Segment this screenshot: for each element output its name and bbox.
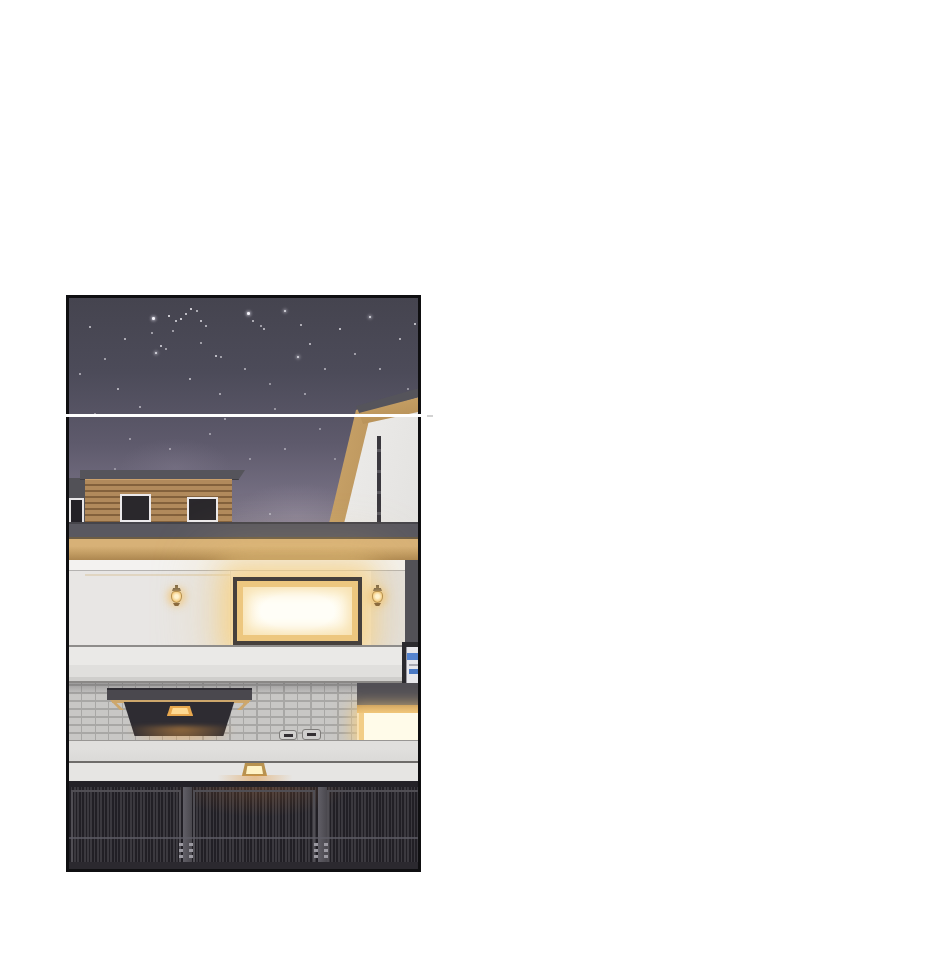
floor-slab-band — [69, 645, 418, 683]
gate-hinge — [314, 849, 318, 852]
object-slot — [284, 734, 293, 737]
intercom-panel — [409, 669, 418, 674]
gate-hinge — [189, 849, 193, 852]
star — [200, 320, 202, 322]
gate-hinge — [179, 843, 183, 846]
boundary-wall-ledge — [69, 740, 418, 761]
gate-hinge — [314, 855, 318, 858]
comic-panel[interactable] — [66, 295, 421, 872]
molding-band — [69, 560, 418, 571]
star — [269, 513, 271, 515]
canopy-ceiling-lamp — [167, 706, 193, 716]
star — [89, 326, 91, 328]
gate-hinge — [189, 843, 193, 846]
gate-mid-rail — [69, 837, 418, 839]
entrance-canopy-slab — [107, 688, 252, 700]
gate-hinge — [179, 855, 183, 858]
star — [196, 310, 198, 312]
star — [414, 323, 416, 325]
lantern-glass — [171, 591, 182, 603]
roof-cabin-window-2 — [187, 497, 218, 522]
wall-lantern-right — [371, 585, 384, 608]
roof-cabin-window-1 — [120, 494, 151, 522]
wall-lantern-left — [170, 585, 183, 608]
cornice-band — [69, 537, 418, 560]
star — [407, 388, 409, 390]
lantern-glass — [372, 591, 383, 603]
star — [334, 458, 336, 460]
lantern-finial — [376, 585, 379, 588]
star — [297, 356, 299, 358]
star — [114, 468, 116, 470]
star — [274, 408, 276, 410]
star — [263, 328, 265, 330]
lantern-base — [173, 603, 180, 606]
star — [309, 343, 311, 345]
lower-window-light — [359, 713, 418, 740]
star — [104, 358, 106, 360]
star — [339, 328, 341, 330]
star — [168, 315, 170, 317]
gate-hinge — [314, 843, 318, 846]
star — [139, 406, 141, 408]
page — [0, 0, 940, 954]
star — [319, 428, 321, 430]
panel-artwork — [69, 298, 418, 869]
gate-panel-left — [71, 790, 181, 868]
star — [189, 378, 191, 380]
star — [165, 348, 167, 350]
star — [124, 338, 126, 340]
star — [129, 438, 131, 440]
star — [172, 330, 174, 332]
gate-hinge — [324, 849, 328, 852]
gate-hinge — [324, 855, 328, 858]
living-room-window — [233, 577, 362, 645]
star — [399, 338, 401, 340]
intercom-unit — [406, 647, 418, 684]
star — [324, 368, 326, 370]
star — [117, 388, 119, 390]
ledge-object-1 — [279, 730, 297, 740]
gate-panel-right — [327, 790, 418, 868]
gate-hinge — [179, 849, 183, 852]
wall-trim-line — [85, 574, 230, 576]
star — [215, 355, 217, 357]
star — [185, 313, 187, 315]
ledge-object-2 — [302, 729, 321, 740]
star — [152, 317, 155, 320]
lantern-base — [374, 603, 381, 606]
star — [155, 352, 157, 354]
star — [247, 312, 250, 315]
gate-bottom-rail — [69, 862, 418, 869]
star — [160, 345, 162, 347]
star — [180, 318, 182, 320]
gate-hinge — [324, 843, 328, 846]
intercom-slot — [409, 664, 418, 666]
star — [79, 373, 81, 375]
star — [175, 320, 177, 322]
canopy-lamp-light — [171, 708, 189, 714]
intercom-screen — [407, 653, 418, 660]
lantern-finial — [175, 585, 178, 588]
star — [190, 308, 192, 310]
star — [224, 418, 226, 420]
star — [151, 332, 153, 334]
star — [200, 342, 202, 344]
star — [249, 458, 251, 460]
star — [252, 320, 254, 322]
star — [269, 383, 271, 385]
strip-seam-line — [62, 414, 427, 417]
lower-window-frame — [357, 683, 418, 705]
star — [300, 324, 302, 326]
star — [209, 433, 211, 435]
star — [304, 393, 306, 395]
gate-lamp-light — [246, 766, 263, 774]
star — [379, 368, 381, 370]
star — [169, 448, 171, 450]
star — [205, 325, 207, 327]
star — [219, 393, 221, 395]
star — [260, 325, 262, 327]
star — [354, 353, 356, 355]
gate-hinge — [189, 855, 193, 858]
entrance-gate — [69, 787, 418, 869]
star — [369, 316, 371, 318]
star — [284, 448, 286, 450]
star — [220, 356, 222, 358]
gate-panel-middle — [193, 790, 315, 868]
object-slot — [307, 733, 316, 736]
lower-window-glow-band — [357, 705, 418, 713]
star — [284, 310, 286, 312]
parapet-band — [69, 522, 418, 537]
star — [244, 368, 246, 370]
